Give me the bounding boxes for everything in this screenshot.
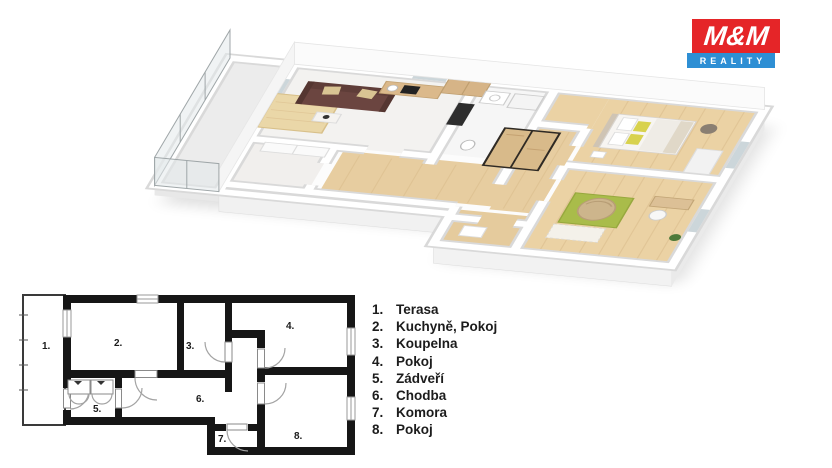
- floor-plan-2d: 1. 2. 3. 4. 5. 6. 7. 8.: [19, 295, 355, 455]
- legend-label: Zádveří: [396, 370, 444, 387]
- legend-label: Chodba: [396, 387, 446, 404]
- legend-label: Terasa: [396, 301, 439, 318]
- window-top: [137, 295, 158, 303]
- legend-number: 2.: [372, 318, 396, 335]
- door-bathroom: [205, 342, 232, 362]
- entry-wardrobes-2d: [68, 380, 113, 404]
- legend-label: Komora: [396, 404, 447, 421]
- agency-logo: M&M REALITY: [687, 19, 782, 69]
- legend-item: 1.Terasa: [372, 301, 497, 318]
- legend-number: 6.: [372, 387, 396, 404]
- logo-reality-text: REALITY: [696, 56, 767, 66]
- legend-number: 3.: [372, 335, 396, 352]
- legend-item: 3.Koupelna: [372, 335, 497, 352]
- door-room8: [258, 383, 287, 404]
- legend-item: 2.Kuchyně, Pokoj: [372, 318, 497, 335]
- room-label-6: 6.: [196, 394, 205, 405]
- room-label-1: 1.: [42, 341, 51, 352]
- storage-box: [459, 226, 487, 238]
- nightstand: [590, 151, 606, 158]
- legend-number: 4.: [372, 353, 396, 370]
- legend-item: 4.Pokoj: [372, 353, 497, 370]
- room-label-4: 4.: [286, 321, 295, 332]
- real-estate-floorplan-image: 1. 2. 3. 4. 5. 6. 7. 8. 1.Terasa 2.Kuchy…: [0, 0, 832, 468]
- legend-label: Pokoj: [396, 421, 433, 438]
- legend-item: 5.Zádveří: [372, 370, 497, 387]
- window-east-room4: [347, 328, 355, 355]
- door-entry-corridor: [116, 388, 143, 408]
- doors-2d: [64, 342, 287, 451]
- legend-label: Koupelna: [396, 335, 458, 352]
- legend-label: Pokoj: [396, 353, 433, 370]
- room-label-5: 5.: [93, 404, 102, 415]
- legend-number: 1.: [372, 301, 396, 318]
- door-room2: [135, 371, 157, 401]
- window-east-room8: [347, 397, 355, 420]
- windows-2d: [63, 295, 355, 420]
- room-label-7: 7.: [218, 434, 227, 445]
- legend-item: 8.Pokoj: [372, 421, 497, 438]
- room-label-8: 8.: [294, 431, 303, 442]
- room-label-3: 3.: [186, 341, 195, 352]
- legend-item: 6.Chodba: [372, 387, 497, 404]
- room-legend: 1.Terasa 2.Kuchyně, Pokoj 3.Koupelna 4.P…: [372, 301, 497, 439]
- floor-plan-3d-render: [137, 30, 772, 286]
- room-label-2: 2.: [114, 338, 123, 349]
- legend-number: 7.: [372, 404, 396, 421]
- legend-item: 7.Komora: [372, 404, 497, 421]
- logo-mm-text: M&M: [702, 21, 770, 52]
- door-room4: [258, 348, 286, 368]
- terrace-outline: [19, 295, 65, 425]
- logo-mm-box: M&M: [692, 19, 780, 53]
- door-storage: [227, 424, 248, 451]
- window-west: [63, 310, 71, 337]
- logo-reality-box: REALITY: [687, 53, 775, 68]
- sofa-pillow: [322, 87, 342, 95]
- legend-label: Kuchyně, Pokoj: [396, 318, 497, 335]
- legend-number: 8.: [372, 421, 396, 438]
- legend-number: 5.: [372, 370, 396, 387]
